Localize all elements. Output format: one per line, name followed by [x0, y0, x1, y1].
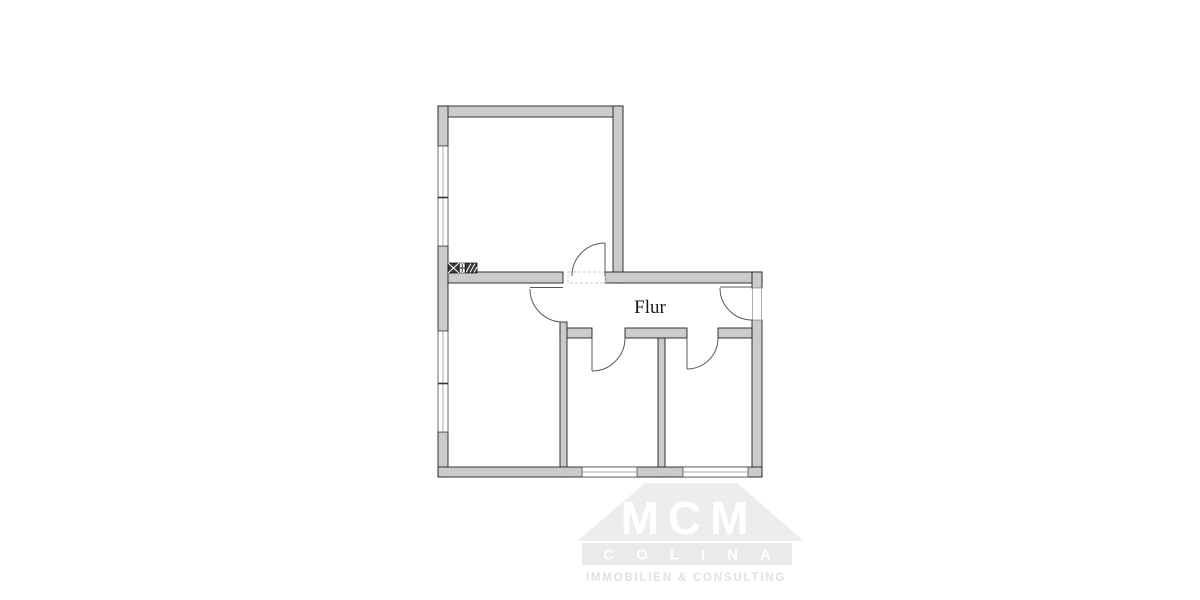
valve-icon	[460, 263, 466, 273]
crossed-shaft-icon	[448, 263, 459, 273]
wall-hallway-bottom-3	[718, 328, 752, 338]
wall-right-above-entrance	[752, 272, 762, 288]
door-swing-arc	[687, 338, 718, 369]
hatched-shaft-icon	[466, 263, 478, 273]
wall-partition-left-middle	[560, 322, 567, 477]
wall-partition-middle-right	[658, 338, 665, 477]
logo-mcm-text: MCM	[621, 492, 758, 544]
floorplan-page: MCM COLINA IMMOBILIEN & CONSULTING	[0, 0, 1200, 600]
watermark-logo: MCM COLINA IMMOBILIEN & CONSULTING	[577, 483, 804, 584]
floor-plan-figure: MCM COLINA IMMOBILIEN & CONSULTING	[0, 0, 1200, 600]
window-right-room-bottom	[683, 467, 748, 477]
wall-right-below-entrance	[752, 320, 762, 477]
logo-subtitle-text: IMMOBILIEN & CONSULTING	[586, 572, 786, 584]
door-swing-arc	[572, 243, 605, 276]
windows	[438, 146, 748, 477]
wall-hallway-top-left	[448, 272, 563, 283]
logo-colina-text: COLINA	[603, 547, 793, 564]
door-top-room	[568, 243, 605, 283]
wall-left-middle	[438, 246, 448, 331]
door-middle-room	[592, 338, 625, 371]
walls	[438, 106, 762, 477]
door-swing-arc	[720, 288, 752, 320]
wall-hallway-top-right	[605, 272, 762, 283]
room-label-flur: Flur	[634, 297, 666, 318]
window-left-room-left	[438, 331, 448, 432]
door-swing-arc	[530, 289, 563, 322]
wall-top-room-top	[438, 106, 623, 117]
door-left-room	[530, 288, 563, 323]
door-swing-arc	[592, 338, 625, 371]
wall-top-room-right	[613, 106, 623, 283]
wall-left-upper	[438, 106, 448, 146]
shaft-symbols	[448, 263, 477, 273]
door-entrance	[720, 287, 762, 320]
window-top-room-left	[438, 146, 448, 246]
wall-hallway-bottom-2	[625, 328, 687, 338]
door-right-room	[687, 338, 718, 369]
window-middle-room-bottom	[582, 467, 637, 477]
